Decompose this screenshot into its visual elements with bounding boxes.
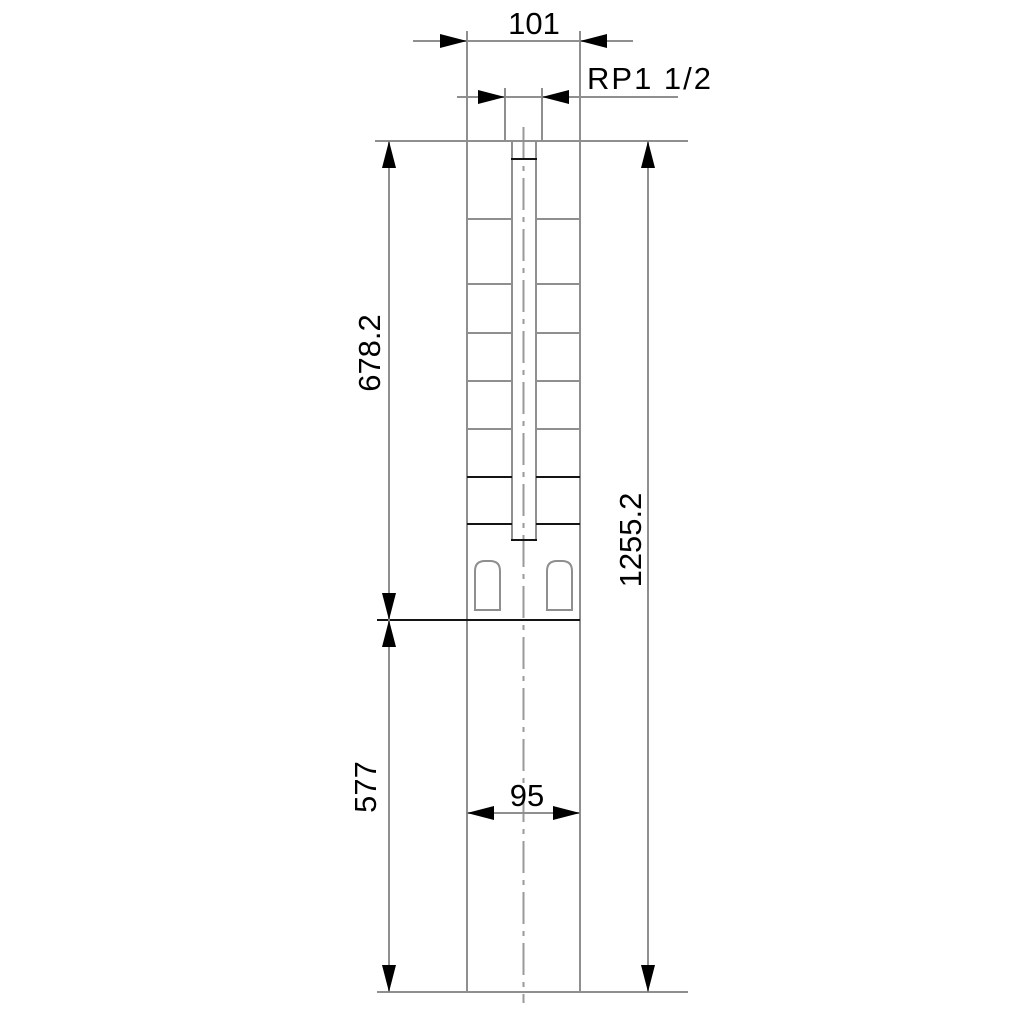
dimension-arrow-icon bbox=[440, 34, 467, 48]
dimension-arrow-icon bbox=[542, 90, 569, 104]
dimension-arrow-icon bbox=[382, 141, 396, 168]
dimension-left-column: 678.2 577 bbox=[348, 141, 396, 992]
dimension-total-length: 1255.2 bbox=[613, 141, 655, 992]
dimension-thread-connection: RP1 1/2 bbox=[457, 61, 713, 104]
dimension-label-lower-width: 95 bbox=[510, 778, 544, 813]
dimension-arrow-icon bbox=[478, 90, 505, 104]
pump-dimensional-drawing: 101 RP1 1/2 678.2 577 1255.2 bbox=[0, 0, 1024, 1024]
dimension-lower-width: 95 bbox=[467, 778, 580, 820]
inlet-screen-left bbox=[475, 561, 500, 610]
dimension-arrow-icon bbox=[641, 965, 655, 992]
dimension-top-width: 101 bbox=[413, 6, 633, 48]
drawing-canvas: 101 RP1 1/2 678.2 577 1255.2 bbox=[0, 0, 1024, 1024]
dimension-arrow-icon bbox=[382, 620, 396, 647]
dimension-label-total-length: 1255.2 bbox=[613, 493, 648, 588]
inlet-screen-right bbox=[547, 561, 572, 610]
dimension-label-thread: RP1 1/2 bbox=[587, 61, 713, 96]
dimension-label-upper-length: 678.2 bbox=[352, 314, 387, 392]
dimension-arrow-icon bbox=[553, 806, 580, 820]
dimension-arrow-icon bbox=[382, 593, 396, 620]
dimension-label-top-width: 101 bbox=[508, 6, 560, 41]
dimension-label-lower-length: 577 bbox=[348, 761, 383, 813]
dimension-arrow-icon bbox=[467, 806, 494, 820]
dimension-arrow-icon bbox=[580, 34, 607, 48]
dimension-arrow-icon bbox=[641, 141, 655, 168]
dimension-arrow-icon bbox=[382, 965, 396, 992]
